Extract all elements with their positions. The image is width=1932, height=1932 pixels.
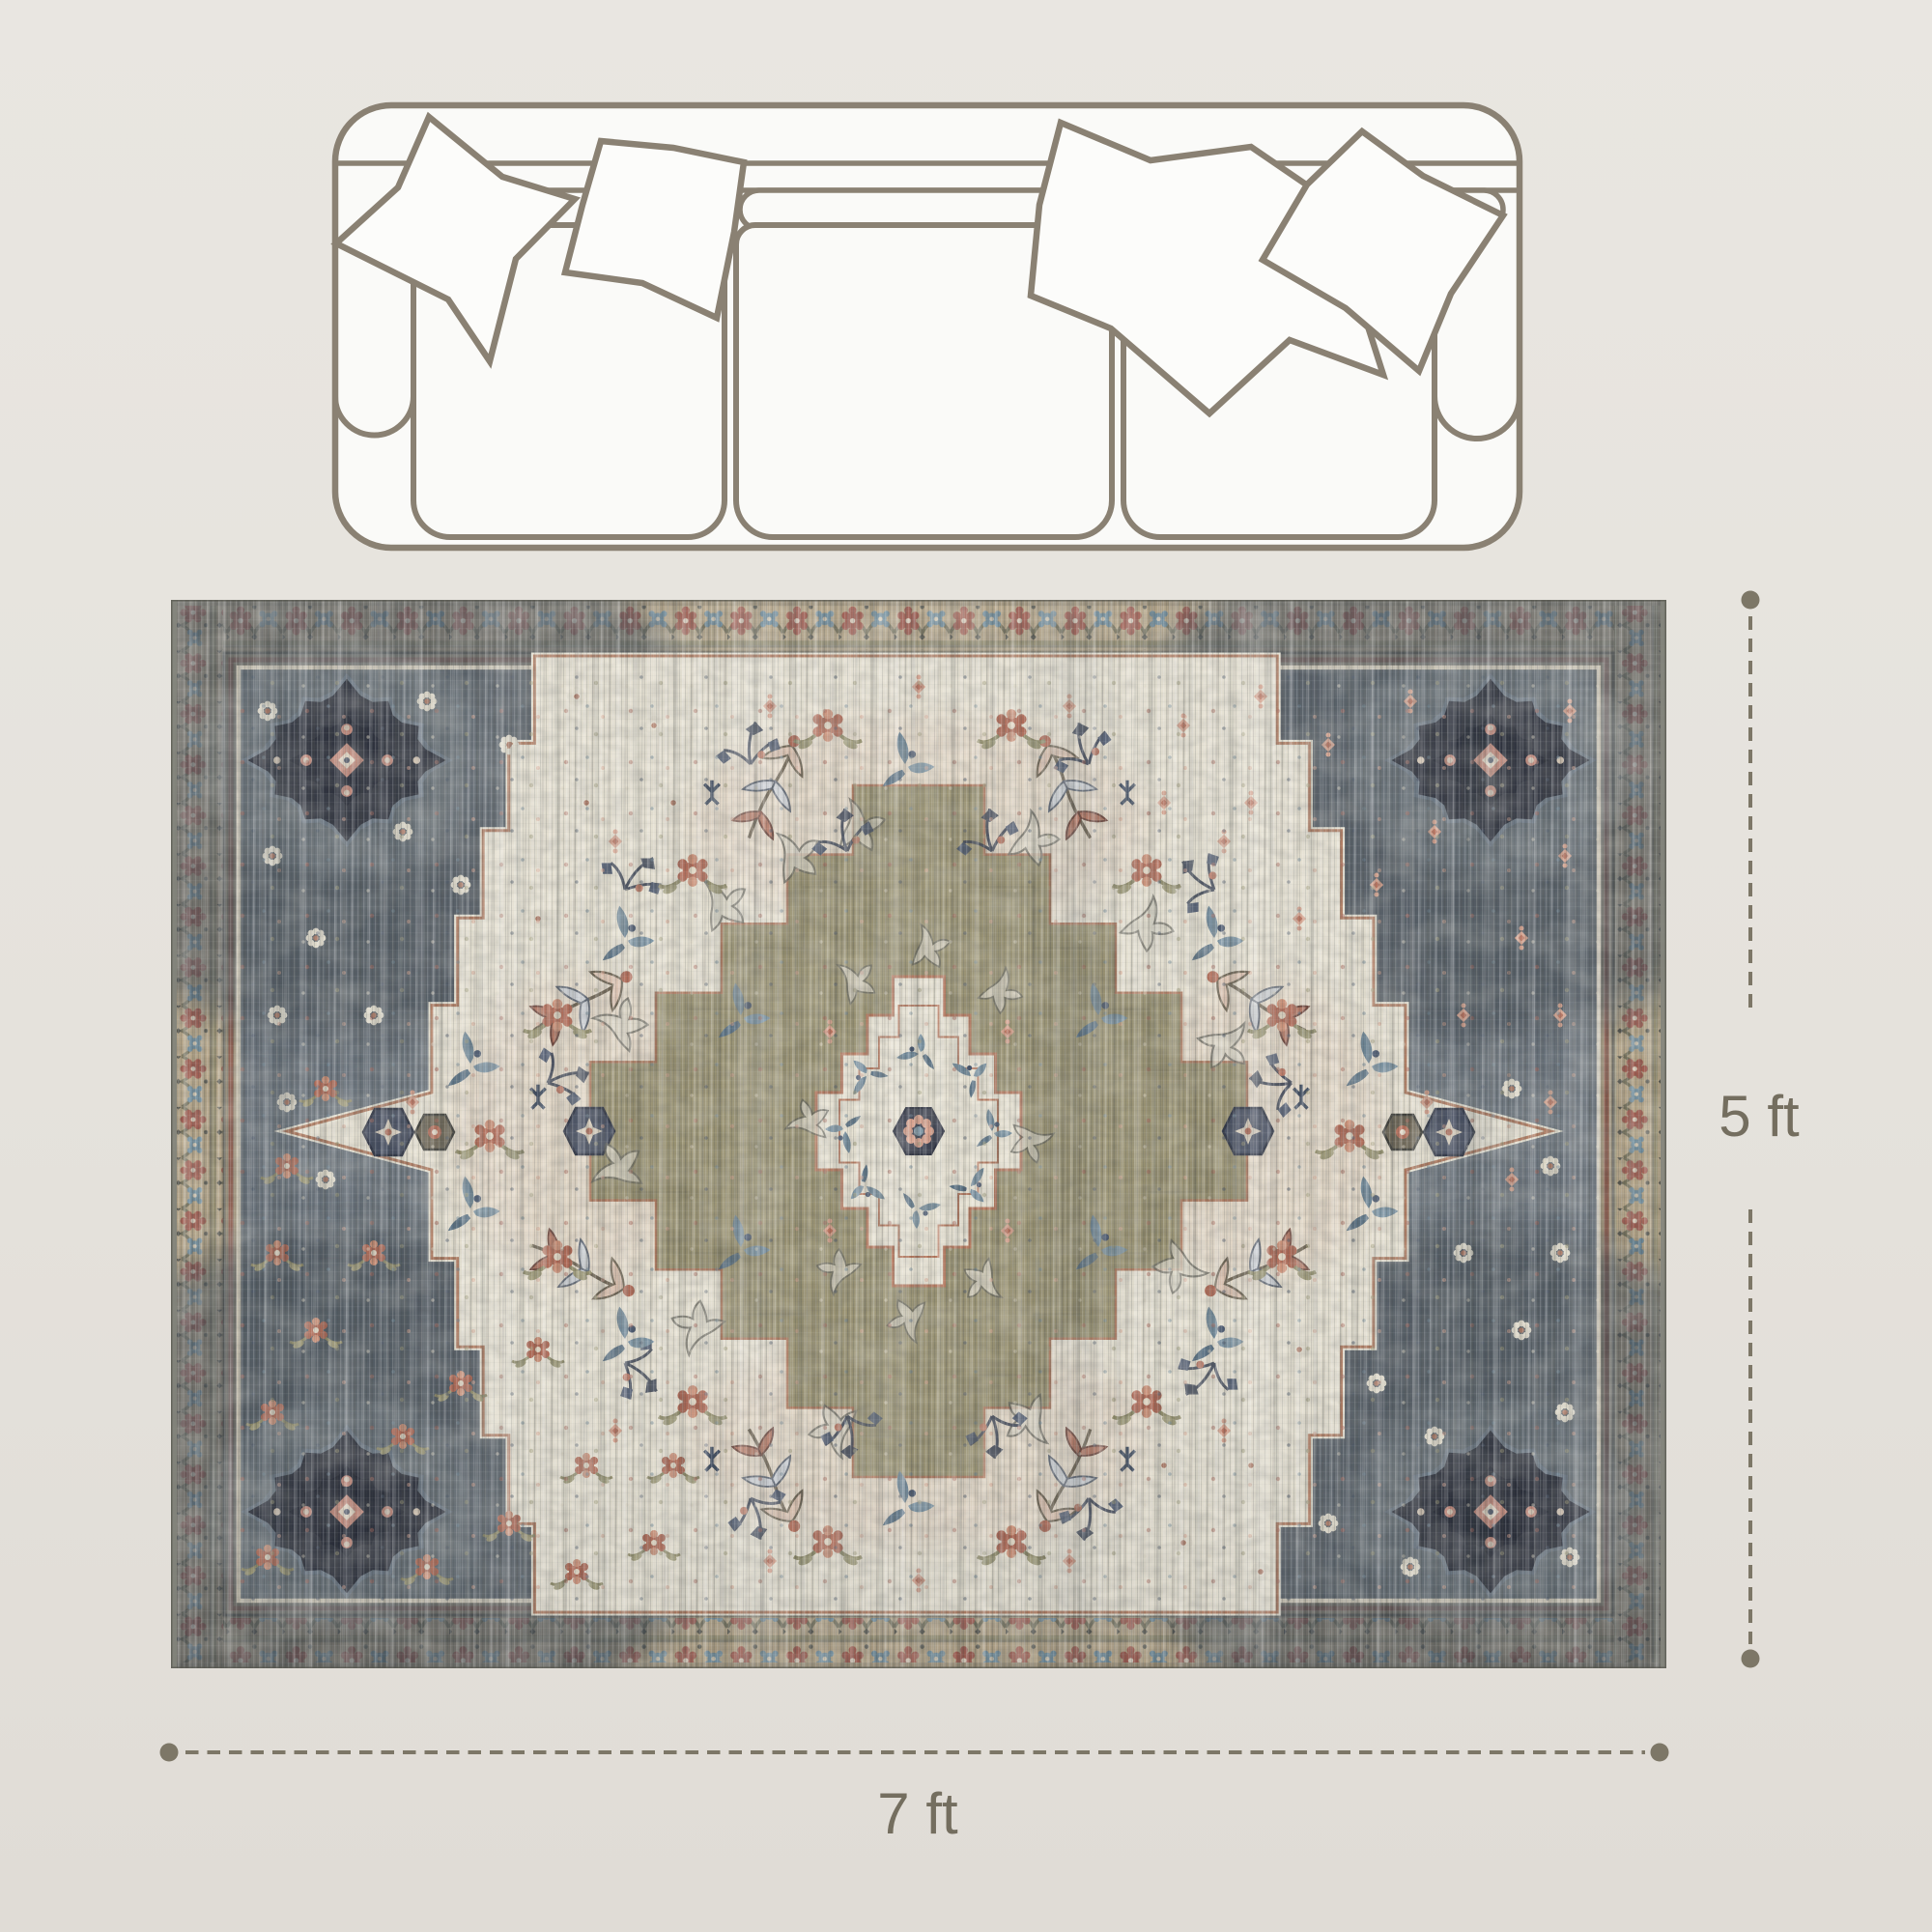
svg-text:5 ft: 5 ft [1719, 1084, 1800, 1149]
svg-text:7 ft: 7 ft [877, 1781, 958, 1846]
